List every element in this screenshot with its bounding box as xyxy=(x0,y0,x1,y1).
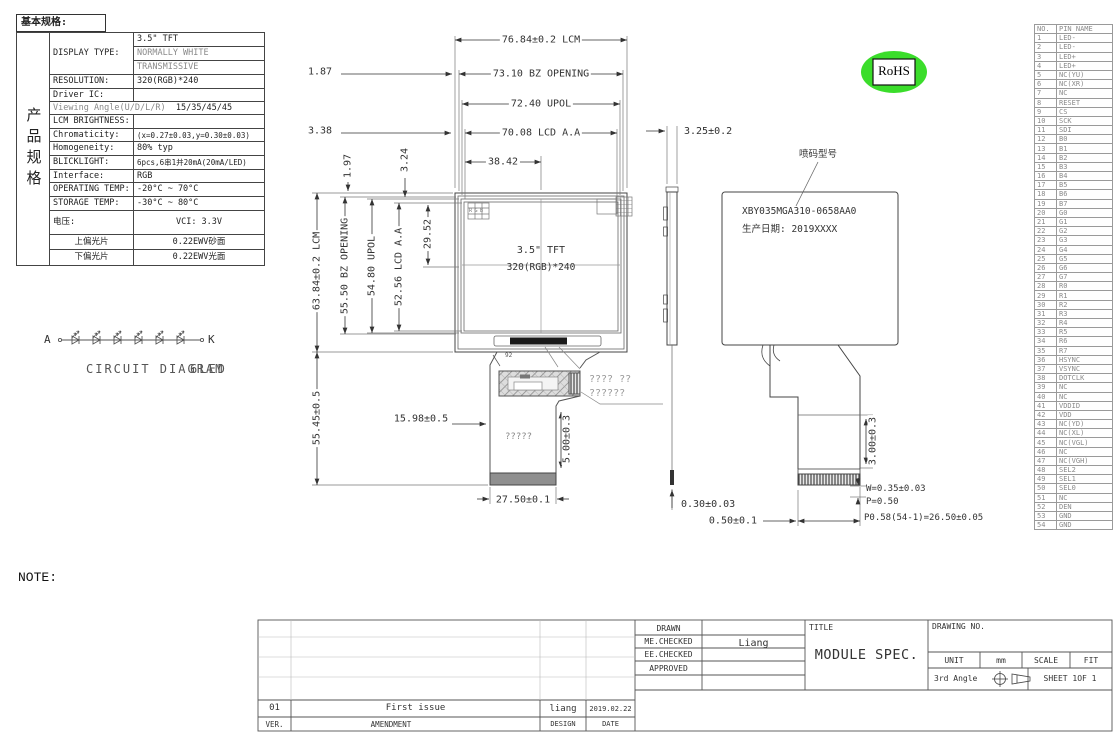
pin-name: VDDID xyxy=(1057,401,1113,410)
pin-number: 28 xyxy=(1035,282,1057,291)
pin-table-row: 2 LED- xyxy=(1035,43,1113,52)
pin-table-row: 49 SEL1 xyxy=(1035,475,1113,484)
pin-table-row: 27 G7 xyxy=(1035,273,1113,282)
title-block-checker-name: Liang xyxy=(702,638,805,649)
pin-table-col-name: PIN NAME xyxy=(1057,25,1113,34)
notes-block: NOTE: xyxy=(18,570,57,588)
pin-number: 47 xyxy=(1035,456,1057,465)
spec-brightness-label: LCM BRIGHTNESS: xyxy=(50,115,134,129)
pin-name: SEL2 xyxy=(1057,466,1113,475)
pin-table-row: 52 DEN xyxy=(1035,502,1113,511)
spec-driver-ic-label: Driver IC: xyxy=(50,89,134,102)
pin-name: B5 xyxy=(1057,181,1113,190)
dim-bz-height: 55.50 BZ OPENING xyxy=(340,216,351,316)
title-block-ee-checked-label: EE.CHECKED xyxy=(635,650,702,659)
pin-table-row: 7 NC xyxy=(1035,89,1113,98)
pin-table-row: 26 G6 xyxy=(1035,263,1113,272)
pin-table-row: 38 DOTCLK xyxy=(1035,374,1113,383)
pin-name: LED- xyxy=(1057,43,1113,52)
pin-table-row: 4 LED+ xyxy=(1035,61,1113,70)
dim-gap: 0.50±0.1 xyxy=(707,516,759,527)
pin-name: GND xyxy=(1057,521,1113,530)
dim-fpc-width: 27.50±0.1 xyxy=(494,495,552,506)
pin-name: NC xyxy=(1057,447,1113,456)
pin-number: 18 xyxy=(1035,190,1057,199)
pin-table-row: 12 B0 xyxy=(1035,135,1113,144)
notes-title: NOTE: xyxy=(18,570,57,585)
spec-top-polarizer-label: 上偏光片 xyxy=(50,235,134,250)
spec-top-polarizer: 0.22EWV砂面 xyxy=(134,235,265,250)
spec-side-label: 产品规格 xyxy=(17,33,50,266)
dim-offset-197: 1.97 xyxy=(343,152,354,180)
pin-name: VDD xyxy=(1057,410,1113,419)
pin-name: LED+ xyxy=(1057,52,1113,61)
dim-fpc-offset: 15.98±0.5 xyxy=(392,414,450,425)
pin-name: G4 xyxy=(1057,245,1113,254)
title-block-unit-label: UNIT xyxy=(928,656,980,665)
dim-lcm-width: 76.84±0.2 LCM xyxy=(500,35,582,46)
pin-name: R4 xyxy=(1057,319,1113,328)
revision-amendment: First issue xyxy=(291,703,540,713)
pin-table-row: 32 R4 xyxy=(1035,319,1113,328)
pin-name: LED- xyxy=(1057,34,1113,43)
pin-number: 13 xyxy=(1035,144,1057,153)
spec-display-type-label: DISPLAY TYPE: xyxy=(50,33,134,75)
pin-table-body: 1 LED- 2 LED- 3 LED+ 4 LED+ 5 NC(YU) 6 N… xyxy=(1035,34,1113,530)
revision-design: liang xyxy=(540,704,586,714)
rohs-badge-text: RoHS xyxy=(873,63,915,79)
pin-name: B6 xyxy=(1057,190,1113,199)
pin-number: 12 xyxy=(1035,135,1057,144)
dim-tape: 0.30±0.03 xyxy=(679,499,737,510)
pin-number: 32 xyxy=(1035,319,1057,328)
pin-name: GND xyxy=(1057,511,1113,520)
pin-name: HSYNC xyxy=(1057,355,1113,364)
dim-half-height: 29.52 xyxy=(423,217,434,251)
pin-name: SDI xyxy=(1057,126,1113,135)
dim-pitch-total: P0.58(54-1)=26.50±0.05 xyxy=(864,513,983,523)
pin-name: R2 xyxy=(1057,300,1113,309)
title-block-title-label: TITLE xyxy=(809,623,833,632)
pin-table-row: 50 SEL0 xyxy=(1035,484,1113,493)
pin-table-row: 10 SCK xyxy=(1035,116,1113,125)
title-block-drawing-no-label: DRAWING NO. xyxy=(932,622,985,631)
pin-number: 26 xyxy=(1035,263,1057,272)
dim-finger-width: W=0.35±0.03 xyxy=(866,484,926,494)
spec-voltage-label: 电压: xyxy=(50,211,134,235)
pin-number: 4 xyxy=(1035,61,1057,70)
pin-table-row: 54 GND xyxy=(1035,521,1113,530)
dim-offset-338: 3.38 xyxy=(306,126,334,137)
pin-table-row: 25 G5 xyxy=(1035,254,1113,263)
pin-table-row: 8 RESET xyxy=(1035,98,1113,107)
pin-table-row: 24 G4 xyxy=(1035,245,1113,254)
title-block-title: MODULE SPEC. xyxy=(805,647,928,663)
pin-name: NC(YD) xyxy=(1057,420,1113,429)
pin-name: DOTCLK xyxy=(1057,374,1113,383)
pin-number: 5 xyxy=(1035,70,1057,79)
title-block-me-checked-label: ME.CHECKED xyxy=(635,637,702,646)
title-block-unit-value: mm xyxy=(980,656,1022,665)
pin-number: 36 xyxy=(1035,355,1057,364)
fpc-tail-front xyxy=(490,347,663,485)
pin-number: 23 xyxy=(1035,236,1057,245)
spec-viewing-angle: 15/35/45/45 xyxy=(176,103,232,113)
dim-thickness: 3.25±0.2 xyxy=(682,126,734,137)
spec-brightness xyxy=(134,115,265,129)
pin-number: 51 xyxy=(1035,493,1057,502)
title-block-scale-label: SCALE xyxy=(1022,656,1070,665)
fpc-note-line1: ???? ?? xyxy=(589,374,631,385)
spec-display-type-3: TRANSMISSIVE xyxy=(134,61,265,75)
revision-version: 01 xyxy=(258,703,291,713)
dim-offset-187: 1.87 xyxy=(306,67,334,78)
pin-number: 2 xyxy=(1035,43,1057,52)
spec-homogeneity-label: Homogeneity: xyxy=(50,142,134,156)
pin-name: R1 xyxy=(1057,291,1113,300)
pin-number: 41 xyxy=(1035,401,1057,410)
pin-table-row: 34 R6 xyxy=(1035,337,1113,346)
back-view-date-text: 生产日期: 2019XXXX xyxy=(742,221,837,235)
fpc-note-line2: ?????? xyxy=(589,388,625,399)
pin-table-row: 44 NC(XL) xyxy=(1035,429,1113,438)
title-block-projection-label: 3rd Angle xyxy=(934,674,977,683)
pin-number: 53 xyxy=(1035,511,1057,520)
front-view-rgb-icon-label: RGB xyxy=(469,208,486,214)
pin-name: G7 xyxy=(1057,273,1113,282)
title-block-approved-label: APPROVED xyxy=(635,664,702,673)
spec-operating-temp-label: OPERATING TEMP: xyxy=(50,183,134,197)
dim-aa-height: 52.56 LCD A.A xyxy=(394,226,405,308)
pin-table-row: 17 B5 xyxy=(1035,181,1113,190)
pin-number: 31 xyxy=(1035,309,1057,318)
dim-aa-width: 70.08 LCD A.A xyxy=(500,128,582,139)
pin-name: G3 xyxy=(1057,236,1113,245)
pin-name: NC(VGL) xyxy=(1057,438,1113,447)
pin-number: 21 xyxy=(1035,217,1057,226)
title-block-sheet-label: SHEET 1OF 1 xyxy=(1028,674,1112,683)
pin-table-row: 1 LED- xyxy=(1035,34,1113,43)
pin-name: SEL1 xyxy=(1057,475,1113,484)
pin-number: 49 xyxy=(1035,475,1057,484)
pin-number: 14 xyxy=(1035,153,1057,162)
pin-number: 27 xyxy=(1035,273,1057,282)
pin-number: 22 xyxy=(1035,227,1057,236)
pin-table-row: 29 R1 xyxy=(1035,291,1113,300)
circuit-anode-label: A xyxy=(44,333,51,346)
pin-number: 34 xyxy=(1035,337,1057,346)
spec-driver-ic xyxy=(134,89,265,102)
pin-name: NC(XR) xyxy=(1057,80,1113,89)
pin-number: 8 xyxy=(1035,98,1057,107)
pin-number: 7 xyxy=(1035,89,1057,98)
pin-name: DEN xyxy=(1057,502,1113,511)
pin-table-row: 41 VDDID xyxy=(1035,401,1113,410)
spec-display-type-1: 3.5" TFT xyxy=(134,33,265,47)
pin-name: NC(VGH) xyxy=(1057,456,1113,465)
spec-interface-label: Interface: xyxy=(50,170,134,183)
pin-number: 35 xyxy=(1035,346,1057,355)
revision-date: 2019.02.22 xyxy=(586,705,635,713)
spec-voltage: VCI: 3.3V xyxy=(134,211,265,235)
pin-table-row: 48 SEL2 xyxy=(1035,466,1113,475)
pin-table-row: 42 VDD xyxy=(1035,410,1113,419)
pin-name: RESET xyxy=(1057,98,1113,107)
pin-number: 30 xyxy=(1035,300,1057,309)
pin-number: 11 xyxy=(1035,126,1057,135)
pin-name: R6 xyxy=(1057,337,1113,346)
pin-name: SEL0 xyxy=(1057,484,1113,493)
pin-name: LED+ xyxy=(1057,61,1113,70)
marking-leader-line xyxy=(796,162,818,206)
title-block-drawn-label: DRAWN xyxy=(635,624,702,633)
pin-table-row: 5 NC(YU) xyxy=(1035,70,1113,79)
pin-name: B2 xyxy=(1057,153,1113,162)
pin-name: R3 xyxy=(1057,309,1113,318)
pin-number: 19 xyxy=(1035,199,1057,208)
pin-number: 54 xyxy=(1035,521,1057,530)
pin-number: 1 xyxy=(1035,34,1057,43)
pin-table-row: 6 NC(XR) xyxy=(1035,80,1113,89)
pin-number: 48 xyxy=(1035,466,1057,475)
spec-bottom-polarizer: 0.22EWV光面 xyxy=(134,250,265,266)
pin-table-row: 51 NC xyxy=(1035,493,1113,502)
revision-design-header: DESIGN xyxy=(540,720,586,728)
pin-name: NC(XL) xyxy=(1057,429,1113,438)
pin-table-row: 35 R7 xyxy=(1035,346,1113,355)
pin-name: B0 xyxy=(1057,135,1113,144)
spec-storage-temp-label: STORAGE TEMP: xyxy=(50,197,134,211)
pin-name: B4 xyxy=(1057,172,1113,181)
pin-table-row: 20 G0 xyxy=(1035,208,1113,217)
spec-backlight: 6pcs,6串1并20mA(20mA/LED) xyxy=(134,156,265,170)
pin-number: 25 xyxy=(1035,254,1057,263)
pin-number: 39 xyxy=(1035,383,1057,392)
pin-number: 20 xyxy=(1035,208,1057,217)
pin-name: SCK xyxy=(1057,116,1113,125)
dim-fpc-length: 55.45±0.5 xyxy=(312,389,323,447)
pin-number: 45 xyxy=(1035,438,1057,447)
pin-table: NO. PIN NAME 1 LED- 2 LED- 3 LED+ 4 LED+… xyxy=(1034,24,1113,530)
pin-table-row: 23 G3 xyxy=(1035,236,1113,245)
front-view-size-label: 3.5" TFT xyxy=(481,245,601,256)
pin-number: 43 xyxy=(1035,420,1057,429)
pin-table-row: 36 HSYNC xyxy=(1035,355,1113,364)
pin-table-row: 16 B4 xyxy=(1035,172,1113,181)
pin-number: 15 xyxy=(1035,162,1057,171)
projection-symbol xyxy=(992,671,1030,687)
pin-table-row: 21 G1 xyxy=(1035,217,1113,226)
pin-name: NC xyxy=(1057,493,1113,502)
pin-name: B7 xyxy=(1057,199,1113,208)
circuit-cathode-label: K xyxy=(208,333,215,346)
pin-table-row: 22 G2 xyxy=(1035,227,1113,236)
dim-connector-height: 3.00±0.3 xyxy=(868,415,879,467)
pin-name: R7 xyxy=(1057,346,1113,355)
pin-table-row: 28 R0 xyxy=(1035,282,1113,291)
pin-table-row: 14 B2 xyxy=(1035,153,1113,162)
pin-table-row: 15 B3 xyxy=(1035,162,1113,171)
pin-name: NC xyxy=(1057,392,1113,401)
pin-name: NC(YU) xyxy=(1057,70,1113,79)
pin-table-row: 47 NC(VGH) xyxy=(1035,456,1113,465)
front-view-slot-mark: 92 xyxy=(505,352,512,359)
front-view-resolution-label: 320(RGB)*240 xyxy=(481,262,601,273)
fpc-center-text: ????? xyxy=(505,432,532,442)
pin-number: 9 xyxy=(1035,107,1057,116)
pin-number: 10 xyxy=(1035,116,1057,125)
pin-number: 37 xyxy=(1035,364,1057,373)
pin-name: G6 xyxy=(1057,263,1113,272)
module-spec-sheet: 基本规格: 产品规格 DISPLAY TYPE: 3.5" TFT NORMAL… xyxy=(0,0,1120,744)
pin-number: 16 xyxy=(1035,172,1057,181)
pin-table-row: 13 B1 xyxy=(1035,144,1113,153)
pin-number: 38 xyxy=(1035,374,1057,383)
spec-bottom-polarizer-label: 下偏光片 xyxy=(50,250,134,266)
pin-table-row: 53 GND xyxy=(1035,511,1113,520)
back-view-model-text: XBY035MGA310-0658AA0 xyxy=(742,206,856,217)
pin-name: G5 xyxy=(1057,254,1113,263)
pin-name: R5 xyxy=(1057,328,1113,337)
pin-name: NC xyxy=(1057,89,1113,98)
title-block-scale-value: FIT xyxy=(1070,656,1112,665)
pin-number: 33 xyxy=(1035,328,1057,337)
pin-name: G1 xyxy=(1057,217,1113,226)
spec-operating-temp: -20°C ~ 70°C xyxy=(134,183,265,197)
spec-chromaticity-label: Chromaticity: xyxy=(50,129,134,142)
pin-number: 44 xyxy=(1035,429,1057,438)
dim-bz-width: 73.10 BZ OPENING xyxy=(491,69,591,80)
pin-table-row: 45 NC(VGL) xyxy=(1035,438,1113,447)
revision-date-header: DATE xyxy=(586,720,635,728)
pin-table-row: 30 R2 xyxy=(1035,300,1113,309)
pin-number: 17 xyxy=(1035,181,1057,190)
pin-table-row: 18 B6 xyxy=(1035,190,1113,199)
dim-pitch: P=0.50 xyxy=(866,497,899,507)
spec-storage-temp: -30°C ~ 80°C xyxy=(134,197,265,211)
pin-table-row: 19 B7 xyxy=(1035,199,1113,208)
spec-resolution-label: RESOLUTION: xyxy=(50,75,134,89)
revision-ver-header: VER. xyxy=(258,720,291,729)
spec-homogeneity: 80% typ xyxy=(134,142,265,156)
pin-table-row: 46 NC xyxy=(1035,447,1113,456)
pin-name: B1 xyxy=(1057,144,1113,153)
dim-upol-width: 72.40 UPOL xyxy=(509,99,573,110)
spec-table: 产品规格 DISPLAY TYPE: 3.5" TFT NORMALLY WHI… xyxy=(16,32,265,266)
pin-name: R0 xyxy=(1057,282,1113,291)
pin-table-row: 40 NC xyxy=(1035,392,1113,401)
spec-display-type-2: NORMALLY WHITE xyxy=(134,47,265,61)
spec-interface: RGB xyxy=(134,170,265,183)
pin-number: 24 xyxy=(1035,245,1057,254)
spec-resolution: 320(RGB)*240 xyxy=(134,75,265,89)
circuit-led-count-label: 6LED xyxy=(190,362,227,376)
revision-amendment-header: AMENDMENT xyxy=(291,720,491,729)
pin-table-row: 43 NC(YD) xyxy=(1035,420,1113,429)
spec-backlight-label: BLICKLIGHT: xyxy=(50,156,134,170)
pin-table-row: 3 LED+ xyxy=(1035,52,1113,61)
pin-table-row: 33 R5 xyxy=(1035,328,1113,337)
spec-chromaticity: (x=0.27±0.03,y=0.30±0.03) xyxy=(134,129,265,142)
pin-number: 40 xyxy=(1035,392,1057,401)
pin-number: 29 xyxy=(1035,291,1057,300)
pin-number: 50 xyxy=(1035,484,1057,493)
pin-table-col-no: NO. xyxy=(1035,25,1057,34)
pin-name: G0 xyxy=(1057,208,1113,217)
side-view xyxy=(664,187,679,485)
circuit-diagram-linework xyxy=(58,331,203,344)
pin-table-row: 31 R3 xyxy=(1035,309,1113,318)
pin-name: G2 xyxy=(1057,227,1113,236)
pin-name: CS xyxy=(1057,107,1113,116)
pin-number: 3 xyxy=(1035,52,1057,61)
dim-gold-length: 5.00±0.3 xyxy=(562,413,573,465)
pin-name: NC xyxy=(1057,383,1113,392)
pin-table-row: 11 SDI xyxy=(1035,126,1113,135)
pin-number: 46 xyxy=(1035,447,1057,456)
pin-table-row: 37 VSYNC xyxy=(1035,364,1113,373)
dim-half-width: 38.42 xyxy=(486,157,520,168)
dim-upol-height: 54.80 UPOL xyxy=(367,234,378,298)
spec-viewing-angle-row: Viewing Angle(U/D/L/R) 15/35/45/45 xyxy=(50,102,265,115)
pin-table-row: 9 CS xyxy=(1035,107,1113,116)
dim-lcm-height: 63.84±0.2 LCM xyxy=(312,230,323,312)
pin-number: 42 xyxy=(1035,410,1057,419)
pin-name: VSYNC xyxy=(1057,364,1113,373)
pin-number: 52 xyxy=(1035,502,1057,511)
pin-number: 6 xyxy=(1035,80,1057,89)
spec-header: 基本规格: xyxy=(16,14,106,32)
dim-offset-324: 3.24 xyxy=(400,146,411,174)
pin-table-row: 39 NC xyxy=(1035,383,1113,392)
back-view-marking-label: 喷码型号 xyxy=(799,146,837,160)
spec-viewing-angle-label: Viewing Angle(U/D/L/R) xyxy=(53,103,166,113)
pin-name: B3 xyxy=(1057,162,1113,171)
